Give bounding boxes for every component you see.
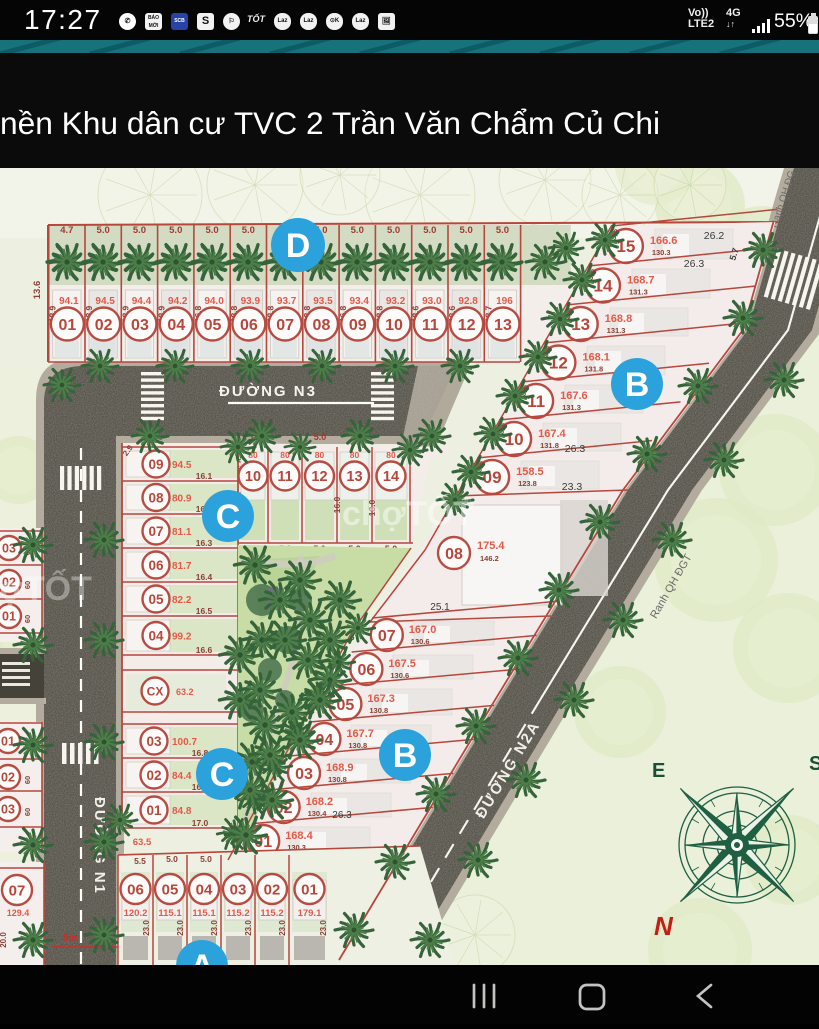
svg-text:84.8: 84.8 [172, 806, 192, 817]
svg-text:11: 11 [527, 392, 545, 411]
svg-text:115.2: 115.2 [226, 908, 249, 919]
svg-text:94.2: 94.2 [168, 296, 188, 307]
svg-text:01: 01 [1, 735, 15, 749]
svg-text:23.0: 23.0 [244, 920, 253, 936]
svg-text:11: 11 [277, 469, 292, 485]
svg-text:04: 04 [167, 317, 185, 334]
svg-text:23.0: 23.0 [142, 920, 151, 936]
svg-text:93.0: 93.0 [422, 296, 442, 307]
svg-text:167.4: 167.4 [538, 428, 566, 440]
svg-text:12: 12 [311, 469, 327, 485]
svg-text:16.0: 16.0 [332, 496, 342, 513]
svg-text:02: 02 [1, 771, 15, 785]
svg-text:07: 07 [148, 524, 163, 539]
svg-text:08: 08 [148, 490, 164, 505]
svg-text:03: 03 [131, 317, 149, 334]
svg-text:168.8: 168.8 [605, 313, 633, 325]
svg-text:166.6: 166.6 [650, 235, 678, 247]
svg-text:80: 80 [315, 450, 325, 460]
svg-text:01: 01 [2, 610, 16, 624]
svg-text:130.3: 130.3 [652, 248, 671, 257]
svg-text:01: 01 [58, 317, 76, 334]
svg-text:94.1: 94.1 [59, 296, 79, 307]
svg-text:26.3: 26.3 [565, 443, 586, 455]
svg-text:B: B [393, 737, 418, 775]
svg-text:02: 02 [264, 881, 281, 898]
svg-text:82.2: 82.2 [172, 595, 192, 606]
svg-text:C: C [210, 756, 235, 794]
svg-text:C: C [216, 498, 241, 536]
svg-text:01: 01 [146, 803, 162, 818]
svg-text:16.4: 16.4 [196, 572, 213, 582]
svg-text:63.2: 63.2 [176, 687, 194, 697]
svg-text:93.9: 93.9 [241, 296, 261, 307]
svg-text:175.4: 175.4 [477, 540, 505, 552]
svg-text:13: 13 [346, 469, 362, 485]
svg-text:5.0: 5.0 [97, 225, 110, 236]
svg-text:5.0: 5.0 [166, 854, 178, 864]
svg-text:5.0: 5.0 [200, 854, 212, 864]
svg-text:92.8: 92.8 [458, 296, 478, 307]
svg-text:07: 07 [276, 317, 294, 334]
svg-text:06: 06 [148, 558, 164, 573]
svg-text:167.3: 167.3 [367, 693, 395, 705]
svg-text:11: 11 [422, 317, 439, 334]
svg-text:16.1: 16.1 [196, 471, 213, 481]
svg-text:®: ® [462, 494, 471, 508]
svg-text:10: 10 [385, 317, 403, 334]
svg-text:130.8: 130.8 [369, 706, 388, 715]
svg-text:94.5: 94.5 [172, 460, 192, 471]
svg-text:81.1: 81.1 [172, 527, 192, 538]
svg-text:23.3: 23.3 [562, 481, 583, 493]
svg-text:16.3: 16.3 [196, 538, 213, 548]
svg-text:129.4: 129.4 [7, 908, 30, 918]
svg-text:93.5: 93.5 [313, 296, 333, 307]
svg-text:23.0: 23.0 [278, 920, 287, 936]
svg-text:93.7: 93.7 [277, 296, 297, 307]
svg-text:5.5: 5.5 [134, 856, 146, 866]
svg-text:12: 12 [458, 317, 476, 334]
svg-text:A: A [190, 948, 215, 965]
svg-text:02: 02 [146, 768, 161, 783]
svg-text:4.7: 4.7 [60, 225, 73, 236]
svg-text:131.3: 131.3 [629, 288, 648, 297]
svg-text:167.7: 167.7 [346, 728, 374, 740]
svg-text:60: 60 [23, 776, 32, 784]
svg-text:23.0: 23.0 [176, 920, 185, 936]
svg-text:17.0: 17.0 [192, 818, 209, 828]
svg-text:168.2: 168.2 [306, 796, 334, 808]
svg-text:93.2: 93.2 [386, 296, 406, 307]
svg-text:146.2: 146.2 [480, 554, 499, 563]
svg-text:60: 60 [23, 615, 32, 623]
svg-text:08: 08 [313, 317, 331, 334]
svg-text:06: 06 [127, 881, 144, 898]
svg-text:167.5: 167.5 [388, 658, 416, 670]
svg-text:CX: CX [147, 684, 164, 698]
svg-text:23.0: 23.0 [319, 920, 328, 936]
svg-text:D: D [286, 227, 311, 265]
svg-text:196: 196 [496, 296, 513, 307]
svg-text:115.1: 115.1 [192, 908, 216, 919]
svg-text:26.3: 26.3 [684, 258, 705, 270]
svg-text:179.1: 179.1 [298, 908, 322, 919]
svg-text:07: 07 [9, 882, 26, 899]
svg-text:23.0: 23.0 [210, 920, 219, 936]
svg-text:04: 04 [148, 628, 164, 643]
svg-text:13: 13 [571, 315, 590, 334]
svg-text:131.8: 131.8 [584, 365, 603, 374]
svg-text:09: 09 [483, 468, 502, 487]
svg-text:5.0: 5.0 [314, 432, 327, 442]
svg-text:9m: 9m [63, 933, 78, 944]
svg-text:131.8: 131.8 [540, 441, 559, 450]
svg-text:115.2: 115.2 [260, 908, 283, 919]
svg-text:20.0: 20.0 [0, 932, 8, 948]
svg-text:05: 05 [162, 881, 179, 898]
svg-text:167.6: 167.6 [560, 390, 588, 402]
svg-text:131.3: 131.3 [562, 403, 581, 412]
svg-text:13: 13 [494, 317, 512, 334]
svg-text:63.5: 63.5 [133, 837, 152, 848]
svg-text:05: 05 [204, 317, 222, 334]
svg-text:08: 08 [445, 546, 463, 563]
svg-text:14: 14 [383, 469, 399, 485]
svg-text:16.6: 16.6 [196, 645, 213, 655]
svg-text:05: 05 [148, 592, 164, 607]
svg-text:94.0: 94.0 [204, 296, 224, 307]
svg-text:131.3: 131.3 [607, 326, 626, 335]
svg-text:5.0: 5.0 [387, 225, 400, 236]
svg-text:115.1: 115.1 [158, 908, 182, 919]
svg-text:93.4: 93.4 [350, 296, 370, 307]
svg-text:5.0: 5.0 [351, 225, 364, 236]
svg-text:123.8: 123.8 [518, 479, 537, 488]
svg-text:13.6: 13.6 [32, 281, 43, 300]
svg-text:04: 04 [196, 881, 213, 898]
svg-text:03: 03 [1, 803, 15, 817]
svg-text:09: 09 [148, 457, 163, 472]
svg-text:158.5: 158.5 [516, 466, 544, 478]
svg-text:168.1: 168.1 [582, 352, 610, 364]
svg-text:03: 03 [295, 766, 313, 783]
svg-text:03: 03 [146, 734, 162, 749]
svg-text:5.0: 5.0 [242, 225, 255, 236]
svg-text:5.0: 5.0 [133, 225, 146, 236]
svg-text:10: 10 [505, 430, 524, 449]
svg-text:94.5: 94.5 [95, 296, 115, 307]
svg-text:chợTỐT: chợTỐT [0, 569, 92, 608]
svg-text:16.5: 16.5 [196, 606, 213, 616]
svg-text:80.9: 80.9 [172, 494, 192, 505]
svg-text:06: 06 [240, 317, 258, 334]
svg-text:5.0: 5.0 [460, 225, 473, 236]
svg-text:09: 09 [349, 317, 367, 334]
svg-text:10: 10 [245, 469, 261, 485]
svg-text:80: 80 [280, 450, 290, 460]
svg-text:chợTỐT: chợTỐT [342, 494, 474, 533]
svg-text:168.4: 168.4 [285, 830, 313, 842]
svg-text:100.7: 100.7 [172, 737, 197, 748]
svg-text:N: N [654, 911, 674, 941]
svg-text:02: 02 [95, 317, 113, 334]
svg-text:60: 60 [23, 808, 32, 816]
svg-text:81.7: 81.7 [172, 561, 192, 572]
svg-text:168.9: 168.9 [326, 762, 354, 774]
svg-text:B: B [625, 366, 650, 404]
svg-text:167.0: 167.0 [409, 624, 437, 636]
svg-text:5.0: 5.0 [496, 225, 509, 236]
svg-text:99.2: 99.2 [172, 632, 192, 643]
svg-text:5.0: 5.0 [205, 225, 218, 236]
svg-text:07: 07 [378, 628, 396, 645]
svg-text:80: 80 [386, 450, 396, 460]
svg-text:S: S [809, 753, 819, 775]
svg-text:120.2: 120.2 [124, 908, 148, 919]
svg-text:26.3: 26.3 [332, 810, 352, 821]
svg-text:26.2: 26.2 [704, 230, 725, 242]
svg-text:5.0: 5.0 [423, 225, 436, 236]
svg-text:01: 01 [301, 881, 318, 898]
svg-text:84.4: 84.4 [172, 771, 192, 782]
svg-text:ĐƯỜNG N3: ĐƯỜNG N3 [219, 382, 317, 400]
svg-text:5.0: 5.0 [169, 225, 182, 236]
svg-text:94.4: 94.4 [132, 296, 152, 307]
svg-text:06: 06 [358, 662, 376, 679]
svg-text:168.7: 168.7 [627, 275, 655, 287]
svg-text:03: 03 [230, 881, 247, 898]
svg-text:E: E [652, 760, 665, 782]
